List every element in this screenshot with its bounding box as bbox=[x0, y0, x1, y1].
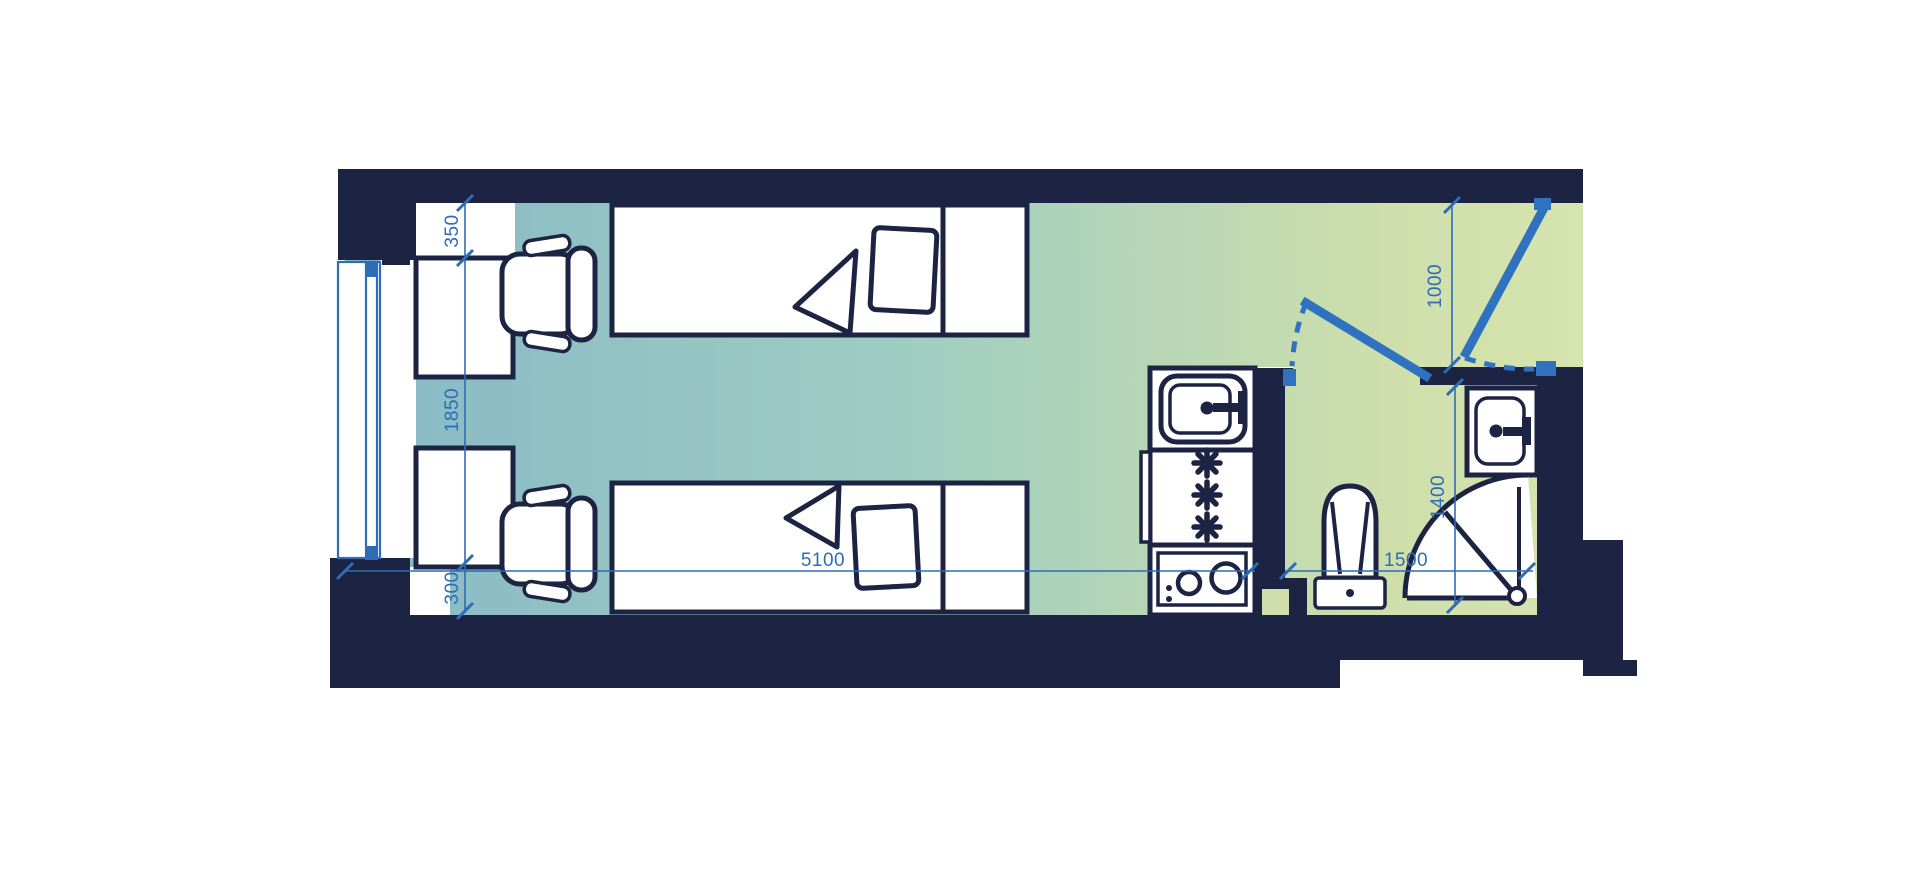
dim-label-1850: 1850 bbox=[442, 388, 463, 432]
bathroom-stub-wall bbox=[1420, 367, 1583, 385]
dim-label-5100: 5100 bbox=[801, 550, 845, 571]
upper-bedside-cabinet bbox=[943, 205, 1027, 335]
upper-chair bbox=[502, 235, 595, 353]
top-wall bbox=[338, 169, 1583, 203]
hob-icon bbox=[1158, 553, 1246, 605]
dim-label-1000: 1000 bbox=[1425, 264, 1446, 308]
window-recess bbox=[380, 260, 416, 558]
upper-pillow bbox=[870, 227, 937, 312]
floor-plan-drawing: 350 1850 300 5100 1500 1000 1400 bbox=[0, 0, 1920, 870]
floor-plan-page: 350 1850 300 5100 1500 1000 1400 bbox=[0, 0, 1920, 870]
lower-bedside-cabinet bbox=[943, 483, 1027, 612]
toilet-icon bbox=[1315, 486, 1385, 608]
bottom-wall-right bbox=[1340, 615, 1583, 660]
kitchenette bbox=[1141, 368, 1255, 615]
top-left-corner-wall bbox=[338, 203, 416, 260]
dim-label-1400: 1400 bbox=[1428, 475, 1449, 519]
window-jamb-bottom bbox=[382, 561, 410, 569]
window-jamb-top bbox=[382, 257, 410, 265]
bottom-wall-left bbox=[330, 615, 1340, 688]
lower-bed bbox=[612, 483, 1027, 612]
dim-label-350: 350 bbox=[442, 214, 463, 247]
floor-notch bbox=[1262, 589, 1289, 615]
right-wall-protrusion bbox=[1583, 540, 1623, 660]
right-wall bbox=[1537, 385, 1583, 615]
lower-chair bbox=[502, 485, 595, 603]
upper-bed bbox=[612, 205, 1027, 335]
kitchen-sink-icon bbox=[1161, 376, 1247, 442]
window-icon bbox=[338, 262, 380, 560]
dim-label-1500: 1500 bbox=[1384, 550, 1428, 571]
dim-label-300: 300 bbox=[442, 571, 463, 604]
bathroom-doorway-floor bbox=[1293, 367, 1420, 385]
bathroom-sink-icon bbox=[1467, 388, 1537, 475]
lower-pillow bbox=[853, 505, 919, 588]
bottom-right-step bbox=[1583, 660, 1637, 676]
